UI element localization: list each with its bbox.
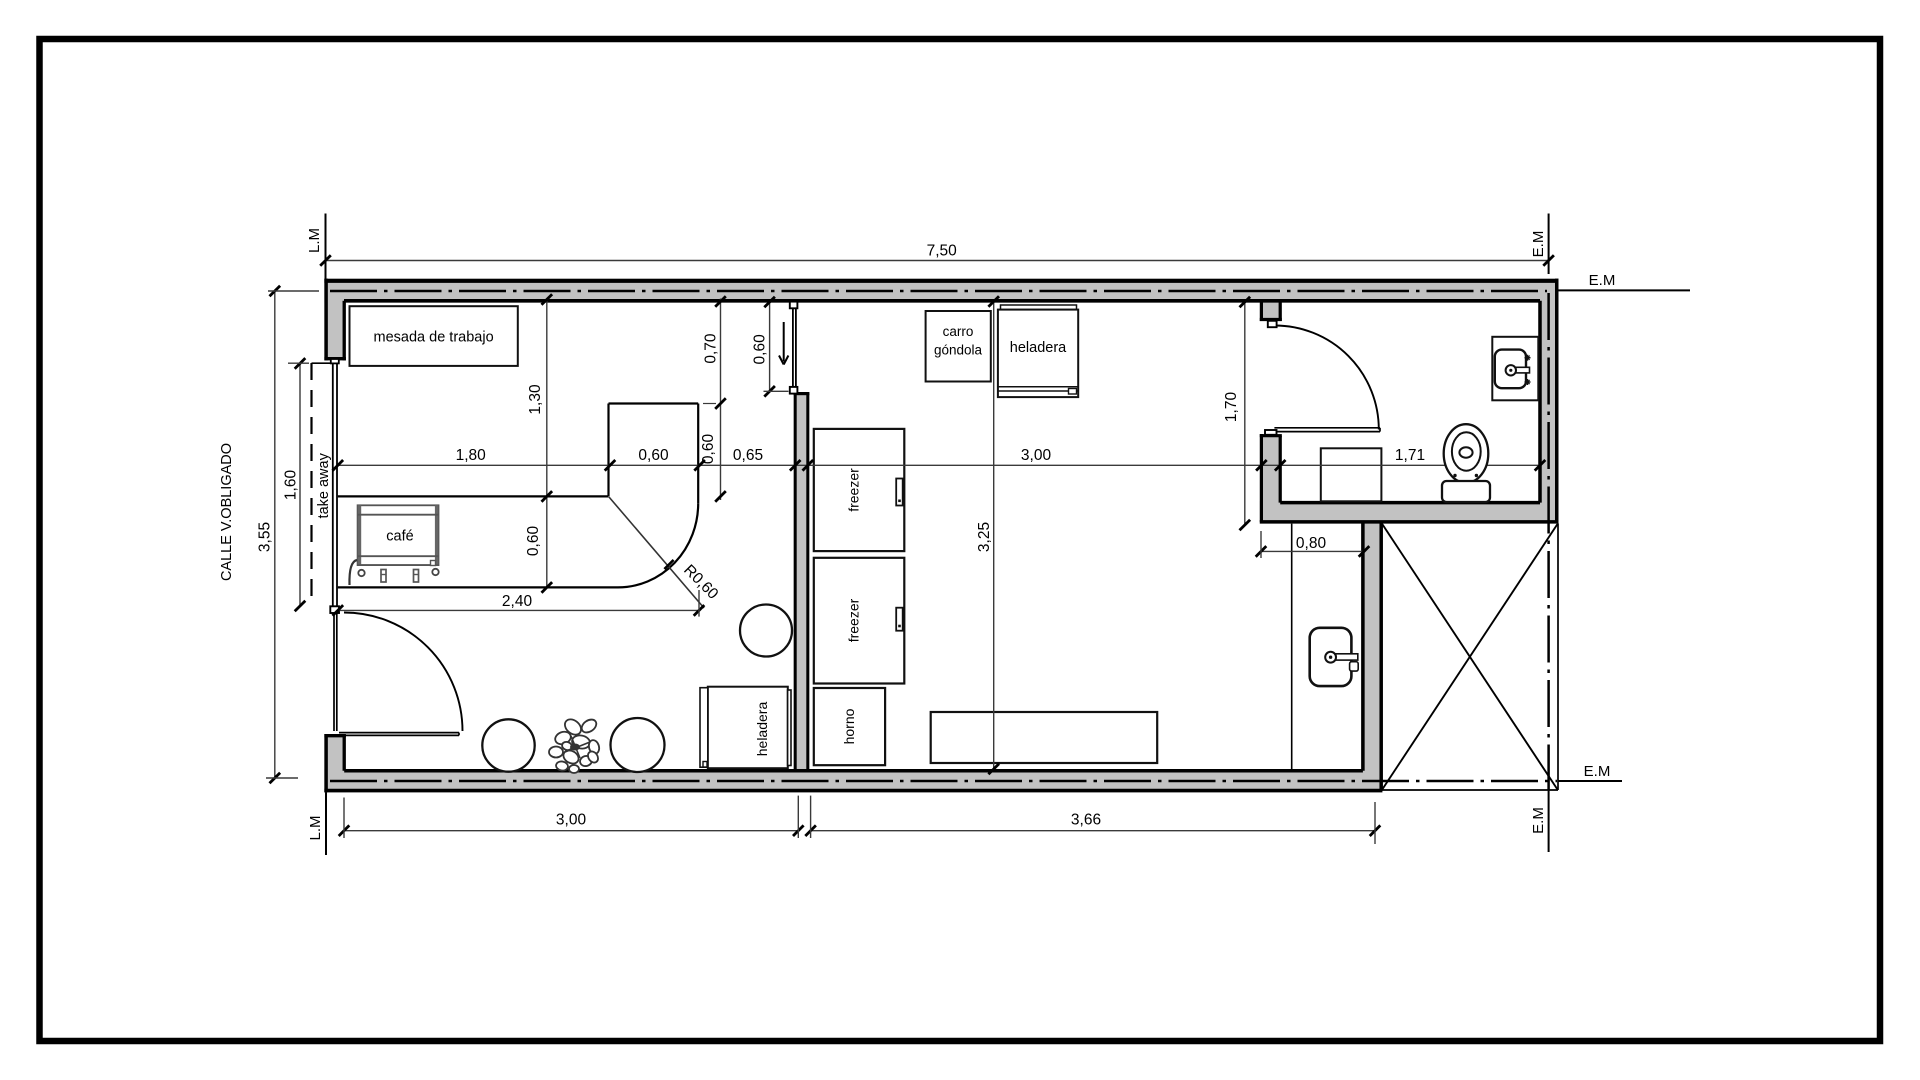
svg-text:heladera: heladera — [754, 702, 770, 757]
svg-text:0,70: 0,70 — [702, 333, 719, 364]
svg-text:0,60: 0,60 — [700, 434, 717, 465]
svg-text:heladera: heladera — [1010, 340, 1067, 356]
svg-text:L.M: L.M — [306, 228, 323, 253]
svg-text:café: café — [386, 529, 413, 545]
svg-text:3,00: 3,00 — [1021, 447, 1052, 464]
svg-text:E.M: E.M — [1584, 763, 1611, 780]
svg-text:góndola: góndola — [934, 343, 983, 358]
svg-text:E.M: E.M — [1530, 231, 1547, 258]
svg-text:take away: take away — [316, 452, 332, 518]
svg-text:L.M: L.M — [307, 815, 324, 840]
svg-text:1,70: 1,70 — [1223, 392, 1240, 423]
svg-text:freezer: freezer — [845, 468, 861, 512]
svg-text:3,66: 3,66 — [1071, 812, 1101, 829]
svg-text:3,00: 3,00 — [556, 812, 587, 829]
svg-text:E.M: E.M — [1530, 807, 1547, 834]
svg-text:1,80: 1,80 — [456, 447, 487, 464]
svg-text:E.M: E.M — [1589, 272, 1616, 289]
svg-text:1,60: 1,60 — [282, 470, 299, 501]
svg-text:2,40: 2,40 — [502, 593, 533, 610]
svg-text:7,50: 7,50 — [927, 243, 958, 260]
svg-text:1,71: 1,71 — [1395, 447, 1425, 464]
svg-text:0,65: 0,65 — [733, 447, 763, 464]
svg-text:horno: horno — [841, 708, 857, 744]
svg-text:carro: carro — [943, 324, 974, 339]
svg-text:0,60: 0,60 — [638, 447, 669, 464]
svg-text:CALLE V.OBLIGADO: CALLE V.OBLIGADO — [219, 443, 235, 581]
svg-text:0,80: 0,80 — [1296, 535, 1327, 552]
svg-text:freezer: freezer — [845, 598, 861, 642]
svg-text:0,60: 0,60 — [751, 334, 768, 365]
svg-text:mesada de trabajo: mesada de trabajo — [374, 330, 494, 346]
svg-text:3,25: 3,25 — [976, 522, 993, 552]
svg-text:0,60: 0,60 — [525, 526, 542, 557]
svg-text:1,30: 1,30 — [527, 384, 544, 415]
svg-text:3,55: 3,55 — [256, 522, 273, 552]
